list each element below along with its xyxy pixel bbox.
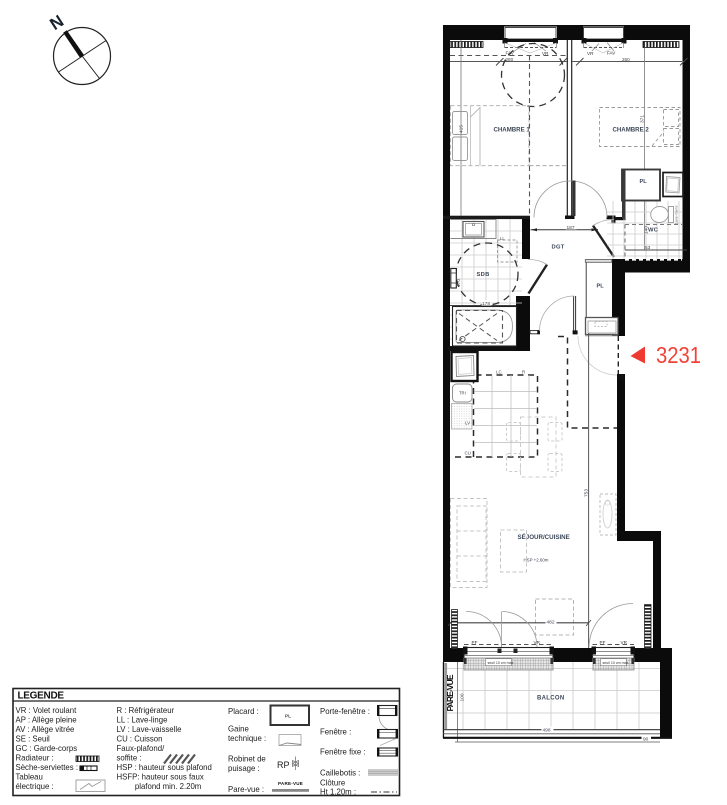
svg-text:CHAMBRE 2: CHAMBRE 2 [613, 127, 650, 134]
svg-text:FAV: FAV [607, 51, 616, 56]
svg-text:PARE-VUE: PARE-VUE [278, 781, 303, 786]
svg-text:VR: VR [621, 640, 628, 645]
svg-text:LEGENDE: LEGENDE [18, 691, 65, 702]
svg-text:HSP +2.60m: HSP +2.60m [524, 558, 549, 563]
svg-text:BALCON: BALCON [537, 696, 564, 702]
svg-text:AP : Allège pleine: AP : Allège pleine [16, 715, 78, 724]
svg-text:technique :: technique : [228, 734, 266, 743]
svg-text:WC: WC [648, 228, 659, 234]
svg-text:SDB: SDB [477, 272, 490, 278]
svg-text:soffite :: soffite : [117, 753, 142, 762]
svg-text:PL: PL [597, 284, 605, 290]
svg-text:VR: VR [587, 51, 594, 56]
svg-text:Tableau: Tableau [16, 772, 43, 781]
svg-text:LV : Lave-vaisselle: LV : Lave-vaisselle [117, 725, 182, 734]
svg-text:Fenêtre :: Fenêtre : [320, 727, 351, 736]
svg-text:Porte-fenêtre :: Porte-fenêtre : [320, 707, 370, 716]
svg-text:753: 753 [584, 489, 590, 497]
svg-text:Faux-plafond/: Faux-plafond/ [117, 744, 165, 753]
svg-text:GC : Garde-corps: GC : Garde-corps [16, 744, 78, 753]
svg-text:Ht 1.20m :: Ht 1.20m : [320, 787, 356, 796]
svg-text:plafond min. 2.20m: plafond min. 2.20m [135, 782, 202, 791]
svg-text:VR : Volet roulant: VR : Volet roulant [16, 706, 77, 715]
svg-text:415: 415 [459, 125, 465, 133]
svg-text:LV: LV [465, 421, 470, 426]
svg-text:LL : Lave-linge: LL : Lave-linge [117, 715, 168, 724]
svg-text:482: 482 [547, 620, 555, 626]
svg-text:498: 498 [543, 728, 551, 734]
svg-text:SÉJOUR/CUISINE: SÉJOUR/CUISINE [518, 533, 570, 541]
svg-text:R : Réfrigérateur: R : Réfrigérateur [117, 706, 175, 715]
svg-text:puisage :: puisage : [228, 764, 260, 773]
svg-text:SE : Seuil: SE : Seuil [16, 734, 50, 743]
svg-text:Radiateur :: Radiateur : [16, 753, 54, 762]
svg-text:Fenêtre fixe :: Fenêtre fixe : [320, 747, 366, 756]
svg-text:PL: PL [285, 714, 291, 719]
svg-text:PF: PF [472, 640, 478, 645]
svg-text:371: 371 [640, 115, 646, 123]
svg-text:Gaine: Gaine [228, 724, 249, 733]
svg-text:3231: 3231 [656, 342, 701, 368]
svg-text:140: 140 [644, 226, 650, 234]
svg-text:187: 187 [567, 225, 575, 231]
svg-text:seuil 10 cm max: seuil 10 cm max [603, 661, 629, 665]
svg-text:100: 100 [460, 693, 466, 701]
svg-text:seuil 10 cm max: seuil 10 cm max [488, 661, 514, 665]
svg-text:CHAMBRE 1: CHAMBRE 1 [494, 127, 531, 134]
svg-text:HSFP: hauteur sous faux: HSFP: hauteur sous faux [117, 772, 204, 781]
svg-text:53: 53 [645, 245, 651, 251]
svg-text:PF: PF [600, 640, 606, 645]
svg-text:CU: CU [465, 451, 471, 456]
svg-text:AV : Allège vitrée: AV : Allège vitrée [16, 725, 75, 734]
svg-text:PL: PL [640, 179, 648, 185]
svg-text:90: 90 [643, 737, 649, 743]
svg-text:DGT: DGT [552, 245, 565, 251]
svg-text:PARE-VUE: PARE-VUE [445, 674, 455, 711]
svg-text:TRI: TRI [459, 391, 466, 396]
svg-text:RP: RP [277, 760, 290, 770]
svg-text:Robinet de: Robinet de [228, 754, 266, 763]
svg-text:Pare-vue :: Pare-vue : [228, 785, 264, 794]
svg-text:R: R [522, 370, 525, 375]
svg-text:HSP : hauteur sous plafond: HSP : hauteur sous plafond [117, 763, 213, 772]
svg-text:Lave-mains: Lave-mains [674, 205, 678, 224]
svg-text:électrique :: électrique : [16, 782, 54, 791]
svg-text:Clôture: Clôture [320, 778, 346, 787]
svg-text:LC: LC [496, 370, 502, 375]
svg-text:CU : Cuisson: CU : Cuisson [117, 734, 163, 743]
svg-text:Caillebotis :: Caillebotis : [320, 768, 360, 777]
svg-text:LL: LL [500, 236, 505, 241]
svg-text:Placard :: Placard : [228, 707, 259, 716]
svg-text:Sèche-serviettes :: Sèche-serviettes : [16, 763, 79, 772]
svg-text:170: 170 [456, 279, 462, 287]
